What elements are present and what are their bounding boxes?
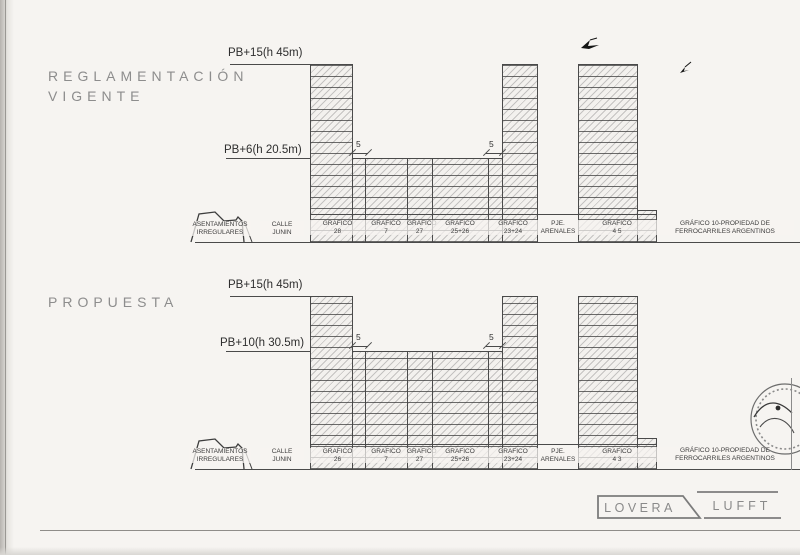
street-label-calle-junin: CALLE JUNIN — [260, 448, 304, 463]
hill-label: ASENTAMIENTOS IRREGULARES — [189, 448, 251, 463]
street-label-calle-junin: CALLE JUNIN — [260, 221, 304, 236]
scan-edge-left — [0, 0, 14, 555]
sheet-bottom-rule — [40, 530, 800, 531]
setback-dim-left: 5 — [356, 139, 361, 149]
parcel-cell-passage: PJE.ARENALES — [538, 448, 578, 463]
parcel-cell: GRAFICO23+24 — [488, 220, 538, 235]
section-title-line2: VIGENTE — [48, 86, 248, 106]
leader-line-pb15 — [230, 296, 310, 297]
dim-tick — [365, 342, 372, 349]
leader-line-pb15 — [230, 64, 310, 65]
height-label-pb6: PB+6(h 20.5m) — [224, 144, 302, 156]
building-left-tower — [310, 64, 353, 243]
setback-dim-right: 5 — [489, 139, 494, 149]
section-title-line1: REGLAMENTACIÓN — [48, 66, 248, 86]
sheet-fold-line — [791, 378, 792, 470]
ground-line — [195, 242, 800, 243]
parcel-cell-passage: PJE.ARENALES — [538, 220, 578, 235]
building-railway-tower — [578, 64, 638, 243]
parcel-cell: GRAFICO25+26 — [432, 448, 488, 463]
band-top-line — [310, 444, 657, 445]
bird-ink-mark-icon — [676, 61, 692, 75]
parcel-cell: GRAFICO27 — [407, 220, 432, 235]
building-right-midblock-tower — [502, 64, 538, 243]
railway-note: GRÁFICO 10-PROPIEDAD DE FERROCARRILES AR… — [656, 220, 794, 235]
height-label-pb15: PB+15(h 45m) — [228, 47, 302, 59]
section-title-line1: PROPUESTA — [48, 292, 178, 312]
band-top-line — [310, 214, 657, 215]
scan-edge-bottom — [0, 547, 800, 555]
logo-text-lufft: LUFFT — [713, 499, 772, 513]
parcel-cell: GRAFICO4 3 — [578, 448, 656, 463]
hill-label: ASENTAMIENTOS IRREGULARES — [189, 221, 251, 236]
parcel-cell: GRAFICO4 5 — [578, 220, 656, 235]
height-label-pb10: PB+10(h 30.5m) — [220, 337, 304, 349]
parcel-cell: GRAFICO26 — [310, 448, 365, 463]
logo-text-lovera: LOVERA — [604, 501, 676, 515]
section-title-vigente: REGLAMENTACIÓN VIGENTE — [48, 66, 248, 106]
scan-border-line — [5, 0, 6, 555]
bird-ink-mark-icon — [579, 37, 601, 52]
ground-line — [195, 469, 800, 470]
setback-dim-right: 5 — [489, 332, 494, 342]
dim-tick — [365, 149, 372, 156]
section-title-propuesta: PROPUESTA — [48, 292, 178, 312]
parcel-cell: GRAFICO23+24 — [488, 448, 538, 463]
parcel-cell: GRAFICO7 — [365, 448, 407, 463]
parcel-cell: GRAFICO28 — [310, 220, 365, 235]
parcel-cell: GRAFICO25+26 — [432, 220, 488, 235]
parcel-cell: GRAFICO7 — [365, 220, 407, 235]
parcel-cell: GRAFICO27 — [407, 448, 432, 463]
height-label-pb15: PB+15(h 45m) — [228, 279, 302, 291]
lovera-lufft-logo: LOVERA LUFFT — [596, 489, 796, 527]
setback-dim-left: 5 — [356, 332, 361, 342]
